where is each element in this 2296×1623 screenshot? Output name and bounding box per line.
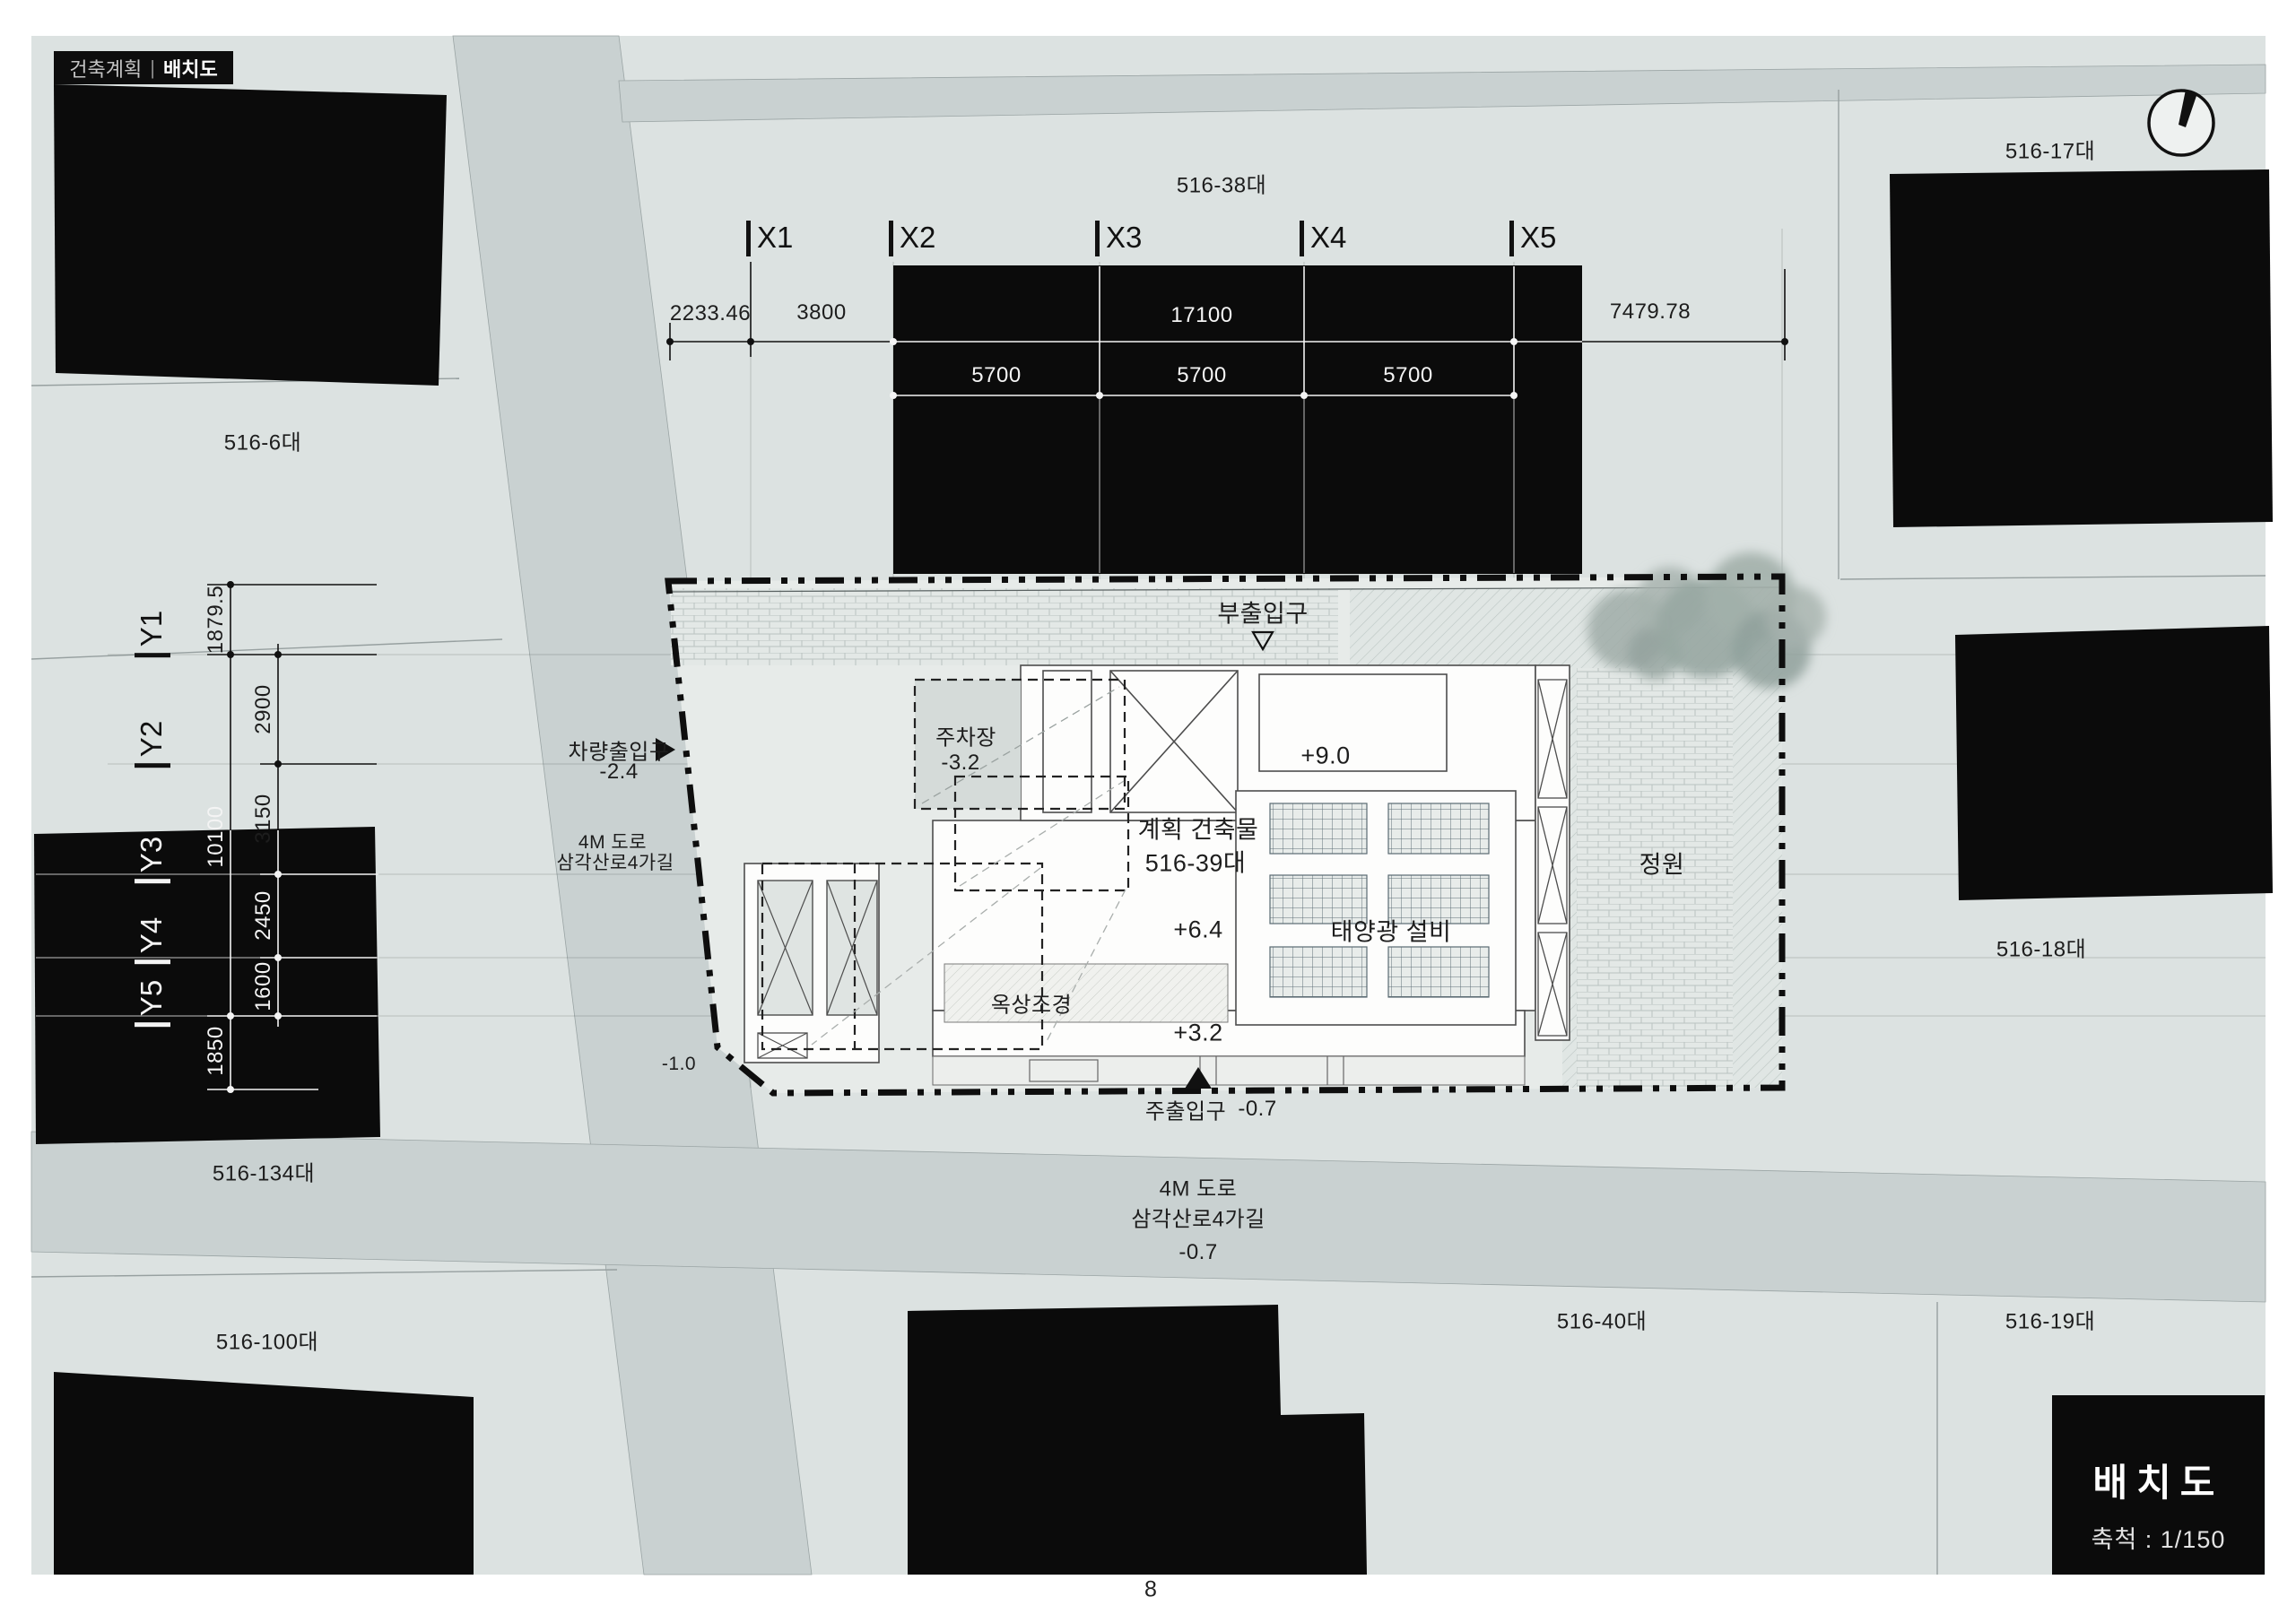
parcel-516-134: 516-134대 bbox=[213, 1156, 315, 1187]
header-divider: | bbox=[150, 56, 155, 80]
road-west-street: 삼각산로4가길 bbox=[556, 848, 674, 875]
road-south-name: 4M 도로 bbox=[1160, 1171, 1238, 1202]
dim-5700-1: 5700 bbox=[971, 363, 1021, 388]
grid-label-y2: Y2 bbox=[135, 721, 170, 768]
parcel-516-40: 516-40대 bbox=[1557, 1304, 1647, 1335]
parcel-516-18: 516-18대 bbox=[1996, 932, 2086, 963]
ground-level-label: -1.0 bbox=[662, 1054, 696, 1075]
building-top-center bbox=[893, 265, 1582, 574]
sheet: 건축계획 | 배치도 X1 X2 X3 X4 X5 Y1 Y2 Y3 Y4 Y5… bbox=[0, 0, 2296, 1623]
header-title: 배치도 bbox=[163, 54, 218, 82]
sub-entrance-label: 부출입구 bbox=[1217, 595, 1308, 629]
dim-2233: 2233.46 bbox=[670, 301, 751, 326]
grid-label-x4: X4 bbox=[1300, 221, 1346, 256]
vehicle-entrance-level: -2.4 bbox=[599, 759, 638, 785]
dim-2900: 2900 bbox=[251, 684, 276, 733]
grid-label-x5: X5 bbox=[1509, 221, 1556, 256]
dim-1879: 1879.5 bbox=[204, 586, 229, 654]
drawing-header: 건축계획 | 배치도 bbox=[54, 51, 233, 84]
level-plus-6-4: +6.4 bbox=[1173, 916, 1222, 944]
building-southwest bbox=[54, 1372, 474, 1575]
grid-tick bbox=[889, 221, 893, 256]
grid-tick bbox=[1509, 221, 1514, 256]
main-entrance-level: -0.7 bbox=[1238, 1097, 1276, 1122]
grid-label-x3: X3 bbox=[1095, 221, 1142, 256]
grid-tick bbox=[1095, 221, 1100, 256]
grid-tick bbox=[135, 653, 170, 657]
parking-level: -3.2 bbox=[941, 751, 979, 776]
roof-landscape-area bbox=[944, 964, 1228, 1022]
building-northeast bbox=[1890, 169, 2273, 527]
parcel-516-17: 516-17대 bbox=[2005, 134, 2095, 165]
dim-1850: 1850 bbox=[204, 1026, 229, 1075]
drawing-scale: 축척 : 1/150 bbox=[2092, 1520, 2226, 1555]
trees bbox=[1587, 552, 1826, 689]
grid-tick bbox=[135, 959, 170, 964]
parcel-516-38: 516-38대 bbox=[1177, 168, 1266, 199]
building-northwest bbox=[54, 84, 447, 386]
dim-3150: 3150 bbox=[251, 794, 276, 843]
grid-label-y3: Y3 bbox=[135, 837, 170, 883]
roof-landscape-label: 옥상조경 bbox=[991, 987, 1072, 1019]
main-entrance-label: 주출입구 bbox=[1145, 1094, 1226, 1125]
planned-building-label: 계획 건축물 bbox=[1138, 811, 1259, 846]
road-north bbox=[619, 65, 2266, 122]
header-section: 건축계획 bbox=[69, 54, 142, 82]
page-number: 8 bbox=[1144, 1577, 1157, 1603]
building-south-center bbox=[908, 1305, 1367, 1575]
dim-5700-2: 5700 bbox=[1177, 363, 1226, 388]
grid-tick bbox=[135, 1022, 170, 1027]
parcel-516-19: 516-19대 bbox=[2005, 1304, 2095, 1335]
grid-label-x1: X1 bbox=[746, 221, 793, 256]
solar-label: 태양광 설비 bbox=[1331, 913, 1452, 948]
grid-label-y5: Y5 bbox=[135, 980, 170, 1027]
drawing-title: 배치도 bbox=[2093, 1453, 2224, 1507]
dim-3800: 3800 bbox=[796, 300, 846, 325]
grid-tick bbox=[135, 879, 170, 883]
grid-tick bbox=[135, 763, 170, 768]
grid-label-y1: Y1 bbox=[135, 611, 170, 657]
parcel-516-100: 516-100대 bbox=[216, 1324, 318, 1356]
parcel-516-6: 516-6대 bbox=[224, 425, 301, 456]
grid-label-x2: X2 bbox=[889, 221, 935, 256]
dim-10100: 10100 bbox=[204, 805, 229, 867]
north-arrow-icon bbox=[2149, 90, 2213, 155]
building-east bbox=[1955, 626, 2273, 900]
parcel-516-39: 516-39대 bbox=[1145, 844, 1246, 879]
dim-5700-3: 5700 bbox=[1383, 363, 1432, 388]
stair-block-west bbox=[744, 864, 879, 1063]
garden-label: 정원 bbox=[1639, 846, 1685, 881]
dim-7479: 7479.78 bbox=[1610, 299, 1691, 325]
grid-tick bbox=[1300, 221, 1304, 256]
level-plus-3-2: +3.2 bbox=[1173, 1020, 1222, 1047]
parking-label: 주차장 bbox=[935, 720, 996, 751]
dim-17100: 17100 bbox=[1170, 303, 1232, 328]
level-plus-9: +9.0 bbox=[1300, 742, 1350, 770]
dim-1600: 1600 bbox=[251, 961, 276, 1011]
dim-2450: 2450 bbox=[251, 890, 276, 940]
road-south-street: 삼각산로4가길 bbox=[1131, 1202, 1265, 1233]
title-block: 배치도 축척 : 1/150 bbox=[2052, 1395, 2265, 1575]
road-south-level: -0.7 bbox=[1178, 1240, 1217, 1265]
grid-tick bbox=[746, 221, 751, 256]
grid-label-y4: Y4 bbox=[135, 917, 170, 964]
